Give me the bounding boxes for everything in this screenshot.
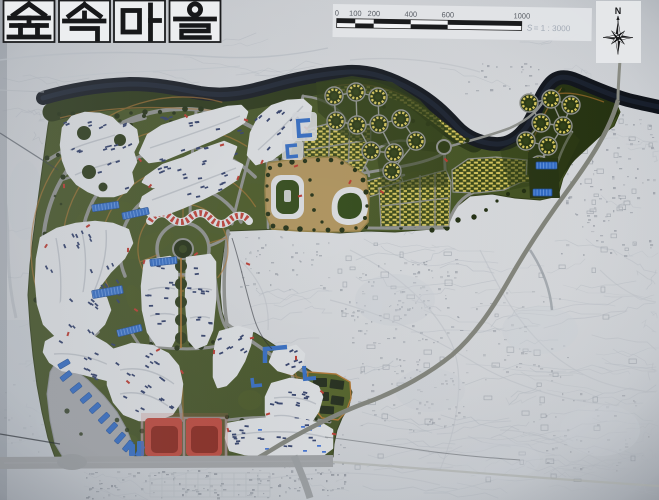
svg-text:100: 100 bbox=[349, 9, 362, 18]
svg-text:= 1 : 3000: = 1 : 3000 bbox=[534, 24, 571, 34]
svg-text:200: 200 bbox=[368, 9, 381, 18]
svg-text:N: N bbox=[615, 6, 622, 16]
svg-text:1000: 1000 bbox=[513, 11, 530, 20]
svg-text:S: S bbox=[527, 23, 533, 33]
svg-text:400: 400 bbox=[405, 10, 418, 19]
svg-text:600: 600 bbox=[442, 10, 455, 19]
svg-text:0: 0 bbox=[335, 9, 339, 18]
